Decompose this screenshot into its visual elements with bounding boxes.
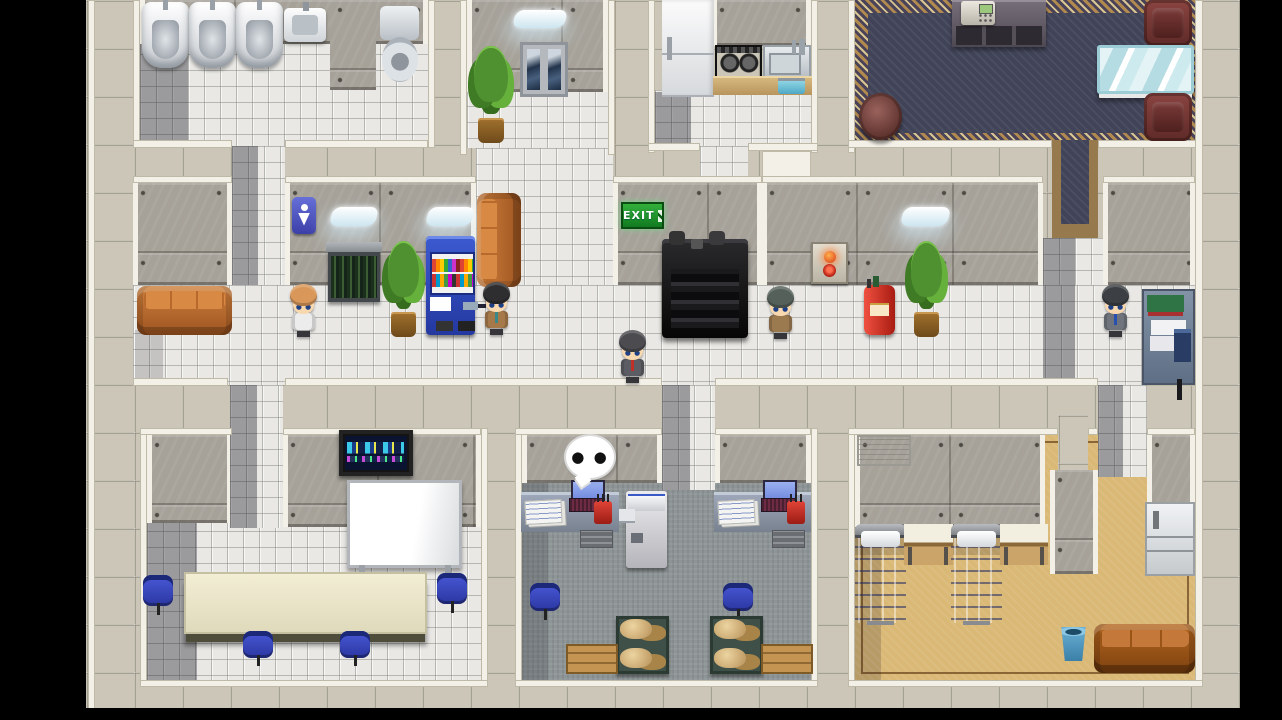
band-a-top-border: [133, 176, 232, 183]
dormitory-door-gap: [1058, 415, 1088, 470]
npc-blonde-woman[interactable]: [288, 283, 319, 337]
band-c-top-border: [613, 176, 762, 183]
npc-bob-woman[interactable]: [765, 285, 796, 339]
fire-extinguisher: [864, 285, 895, 335]
bed-2: [951, 524, 1002, 623]
npc-suit-man[interactable]: [1100, 283, 1131, 337]
wall-band-e: [1103, 183, 1195, 285]
office-border-top-2: [715, 428, 811, 435]
kitchen-wall: [712, 0, 811, 46]
speech-bubble: ● ●: [566, 436, 614, 478]
char-body: [485, 311, 508, 328]
meeting-chair-south-1: [240, 631, 276, 673]
gas-stove: [715, 45, 762, 78]
exit-sign-label: EXIT: [623, 209, 655, 222]
executive-border-bottom-2: [1098, 140, 1203, 148]
kitchen-wall-jut: [762, 151, 811, 179]
meeting-monitor: [339, 430, 413, 476]
band-d-top-border: [762, 176, 1043, 183]
air-conditioner: [857, 435, 911, 466]
whiteboard: [347, 480, 462, 568]
documents-right: [717, 499, 755, 525]
restroom-sign: [292, 197, 316, 234]
wall-band-d: [762, 183, 1043, 285]
right-corridor-border: [1195, 0, 1203, 687]
elevator-border-left: [460, 0, 467, 155]
conference-table: [184, 572, 427, 634]
kitchen-border-bottom-2: [748, 143, 818, 151]
meeting-border-bottom: [140, 680, 488, 687]
meeting-door-shadow: [230, 385, 257, 528]
office-chair-left: [527, 583, 563, 627]
executive-door-path: [1052, 140, 1098, 238]
char-legs: [626, 377, 638, 383]
urinal-2: [189, 2, 236, 68]
kitchen-border-right: [811, 0, 818, 153]
dorm-border-bottom: [848, 680, 1203, 687]
bed-1: [855, 524, 906, 623]
char-hair: [767, 286, 794, 309]
char-body: [769, 315, 792, 332]
dorm-door-shadow: [1098, 385, 1123, 477]
meeting-chair-west: [140, 575, 176, 623]
restroom-border-left: [133, 0, 140, 146]
exit-sign: EXIT: [621, 202, 664, 229]
char-legs: [297, 331, 309, 337]
map-void-right: [1240, 0, 1282, 720]
office-border-top-1: [515, 428, 662, 435]
desk-telephone: [961, 1, 995, 25]
char-hair: [290, 284, 317, 307]
hall-couch-west: [137, 286, 232, 335]
pen-cup-right: [787, 501, 805, 524]
map-void-bottom: [86, 708, 1240, 720]
restroom-border-right: [428, 0, 435, 148]
storage-rack-right: [710, 616, 763, 674]
executive-border-bottom-1: [848, 140, 1052, 148]
dorm-border-top-2: [1088, 428, 1098, 435]
toilet-stall-wall: [330, 0, 376, 90]
band-b-top-border: [285, 176, 476, 183]
restroom-border-bottom-2: [285, 140, 428, 148]
glass-coffee-table: [1097, 45, 1194, 94]
documents-left: [524, 499, 562, 525]
kitchen-border-left: [648, 0, 655, 153]
storage-rack-left: [616, 616, 669, 674]
game-viewport[interactable]: EXIT● ●: [0, 0, 1282, 720]
restroom-door-shadow: [232, 146, 258, 285]
map-void-left: [0, 0, 86, 720]
executive-gap-shadow: [1043, 238, 1075, 385]
char-hair: [1102, 284, 1129, 307]
restroom-border-bottom-1: [133, 140, 232, 148]
elevator-light: [512, 10, 568, 28]
hall-bottom-border-3: [715, 378, 1098, 386]
round-side-table: [859, 93, 902, 140]
bottle-shelf: [328, 250, 380, 302]
char-body: [621, 359, 644, 376]
hall-plant-1: [382, 241, 425, 337]
armchair-south: [1144, 93, 1192, 141]
kitchen-border-bottom-1: [648, 143, 700, 151]
kitchen-wall-shadow: [655, 92, 691, 148]
dorm-wall-right: [1147, 435, 1195, 505]
speech-bubble-label: ● ●: [571, 450, 608, 465]
armchair-north: [1144, 0, 1192, 46]
restroom-sink: [284, 8, 326, 42]
hall-couch-vertical: [477, 193, 521, 287]
pen-cup-left: [594, 501, 612, 524]
hall-bottom-border-2: [285, 378, 662, 386]
executive-border-left: [848, 0, 855, 153]
char-legs: [774, 333, 786, 339]
toilet: [377, 6, 422, 84]
urinal-1: [142, 2, 189, 68]
vending-machine[interactable]: [426, 236, 475, 335]
dorm-border-left: [848, 428, 855, 687]
char-hair: [619, 330, 646, 353]
game-map: EXIT● ●: [0, 0, 1282, 720]
meeting-border-right: [481, 428, 488, 687]
hall-plant-2: [905, 241, 948, 337]
meeting-chair-east: [434, 573, 470, 621]
hall-light-2: [425, 207, 476, 226]
wall-band-a: [133, 183, 232, 285]
char-hair: [483, 282, 510, 305]
left-edge-border: [88, 0, 95, 710]
kitchen-refrigerator: [662, 0, 714, 97]
dorm-cabinet-fridge: [1145, 502, 1195, 576]
char-legs: [1109, 331, 1121, 337]
band-e-top-border: [1103, 176, 1195, 183]
office-border-left: [515, 428, 522, 687]
meeting-border-left: [140, 428, 147, 687]
nightstand-1: [904, 524, 953, 565]
office-copier: [626, 491, 667, 568]
elevator-plant: [468, 46, 514, 143]
elevator-doors[interactable]: [520, 42, 568, 97]
office-door-shadow: [662, 385, 690, 490]
hand-towel: [778, 78, 805, 94]
hall-light-1: [329, 207, 380, 226]
industrial-machine: [662, 239, 748, 338]
hall-light-3: [900, 207, 952, 226]
meeting-chair-south-2: [337, 631, 373, 673]
kitchen-sink: [763, 45, 811, 78]
char-body: [1104, 313, 1127, 330]
elevator-border-right: [608, 0, 615, 155]
fire-alarm-panel: [811, 242, 848, 284]
hall-left-shadow: [135, 330, 163, 385]
nightstand-2: [1000, 524, 1048, 565]
dorm-couch: [1094, 624, 1195, 673]
meeting-wall-left: [147, 435, 232, 523]
crate-right: [761, 644, 813, 674]
dorm-wall-column: [1050, 470, 1098, 574]
dorm-border-top-3: [1147, 428, 1195, 435]
crate-left: [566, 644, 618, 674]
office-border-bottom: [515, 680, 818, 687]
urinal-3: [236, 2, 283, 68]
player-gray-suit[interactable]: [617, 329, 648, 383]
char-body: [292, 313, 315, 330]
office-wall-right: [715, 435, 811, 483]
npc-brown-jacket-man[interactable]: [481, 281, 512, 335]
hall-bottom-border-1: [133, 378, 228, 386]
meeting-border-top-1: [140, 428, 232, 435]
dorm-border-top-1: [848, 428, 1058, 435]
char-legs: [490, 329, 502, 335]
copy-corner-desk: [1142, 289, 1195, 385]
